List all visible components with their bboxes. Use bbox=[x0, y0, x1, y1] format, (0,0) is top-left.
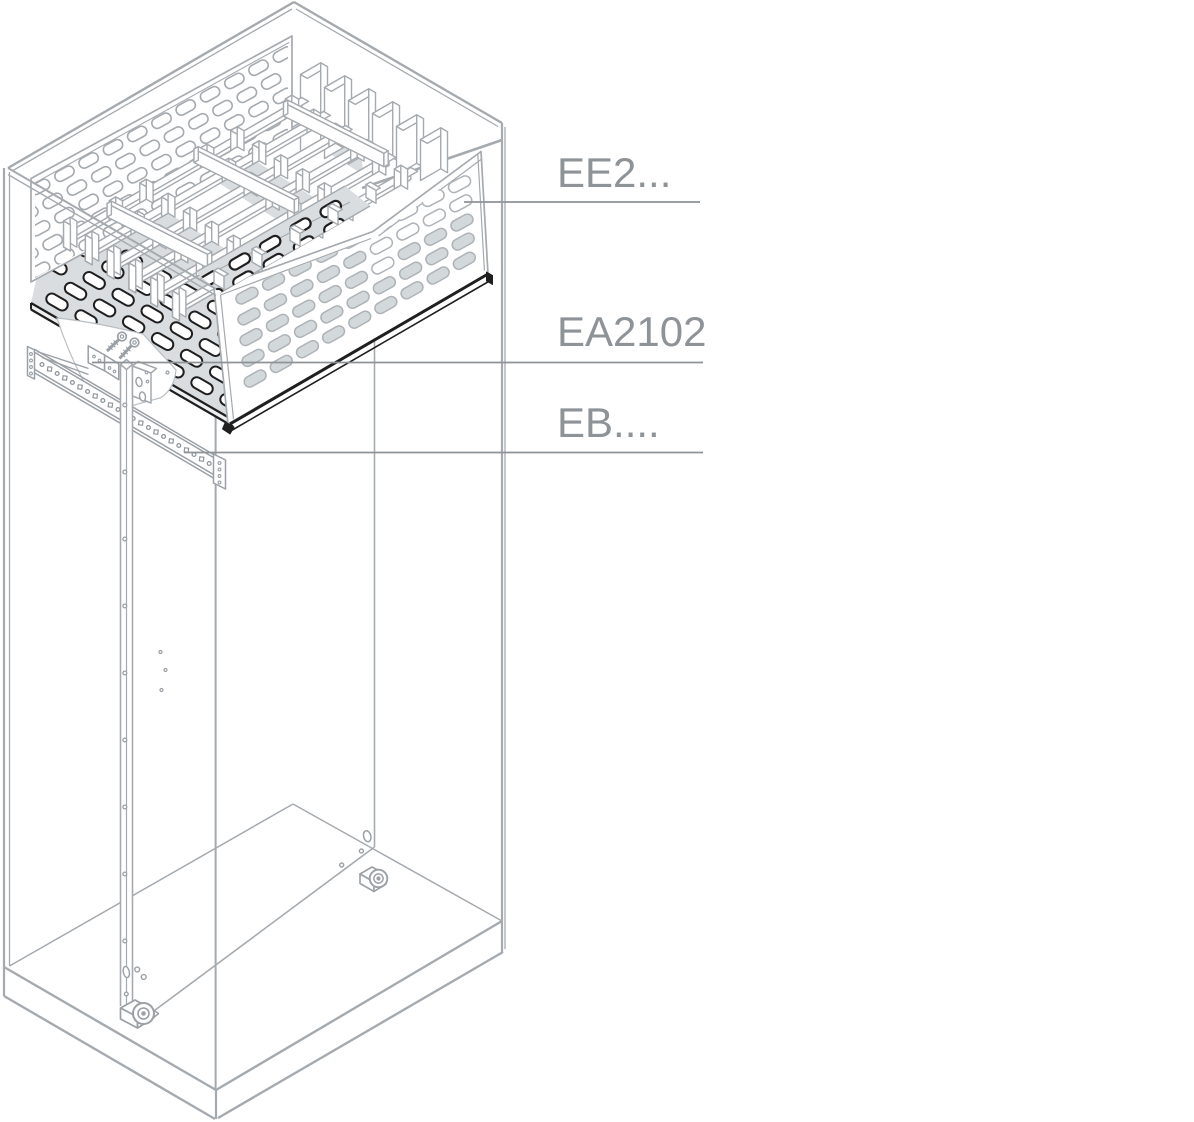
svg-text:EE2...: EE2... bbox=[557, 149, 671, 196]
svg-text:EA2102: EA2102 bbox=[557, 308, 706, 355]
svg-text:EB....: EB.... bbox=[557, 399, 660, 446]
